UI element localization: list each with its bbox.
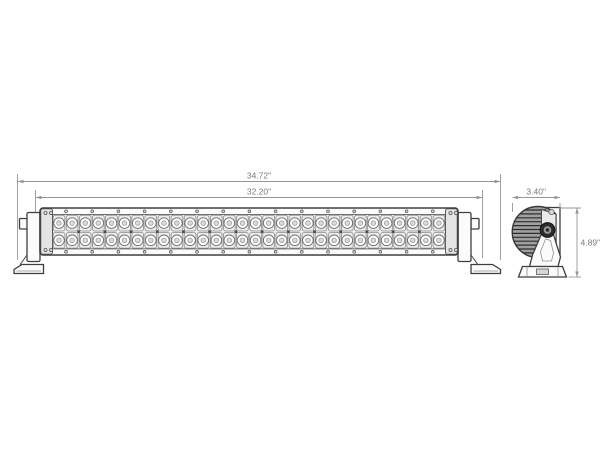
led-cell xyxy=(381,232,393,248)
led-cell xyxy=(407,232,419,248)
led-cell xyxy=(66,232,78,248)
housing-screw xyxy=(143,250,146,253)
dim-arrow-left xyxy=(513,196,519,199)
led-cell xyxy=(250,215,262,231)
housing-width-label: 32.20" xyxy=(247,187,271,197)
diagram-canvas: 34.72" 32.20" xyxy=(0,0,600,462)
housing-screw xyxy=(222,250,225,253)
housing-screw xyxy=(117,250,120,253)
led-cell xyxy=(184,215,196,231)
led-cell xyxy=(315,215,327,231)
led-cell xyxy=(119,232,131,248)
housing-screw xyxy=(91,210,94,213)
led-cell xyxy=(355,215,367,231)
housing-screw xyxy=(353,210,356,213)
divider-screw xyxy=(130,230,133,233)
led-cell xyxy=(93,232,105,248)
dim-arrow-top xyxy=(575,208,579,214)
led-cell xyxy=(433,215,445,231)
cap-screw xyxy=(454,211,457,214)
pivot-bolt xyxy=(540,223,555,238)
led-cell xyxy=(368,215,380,231)
led-cell xyxy=(237,215,249,231)
mount-bracket-left-arm xyxy=(27,213,40,262)
led-cell xyxy=(341,215,353,231)
housing-screw xyxy=(405,250,408,253)
dim-height: 4.89" xyxy=(559,208,600,277)
divider-screw xyxy=(418,230,421,233)
led-cell xyxy=(158,215,170,231)
led-cell xyxy=(407,215,419,231)
cap-screw xyxy=(454,248,457,251)
dim-arrow-left xyxy=(36,196,42,200)
housing-screw xyxy=(196,210,199,213)
led-cell xyxy=(224,215,236,231)
housing-screw xyxy=(379,210,382,213)
housing-screw xyxy=(248,210,251,213)
cap-screw xyxy=(49,248,52,251)
led-cell xyxy=(315,232,327,248)
led-cell xyxy=(171,215,183,231)
housing-screw xyxy=(248,250,251,253)
housing-screw xyxy=(300,250,303,253)
led-cell xyxy=(66,215,78,231)
cap-screw xyxy=(44,248,47,251)
led-cell xyxy=(328,215,340,231)
housing-screw xyxy=(274,250,277,253)
led-cell xyxy=(171,232,183,248)
divider-screw xyxy=(261,230,264,233)
housing-screw xyxy=(65,210,68,213)
overall-width-label: 34.72" xyxy=(247,171,271,181)
led-cell xyxy=(119,215,131,231)
led-cell xyxy=(341,232,353,248)
front-view: 34.72" 32.20" xyxy=(14,171,501,274)
housing-screw xyxy=(169,250,172,253)
mount-bracket-left-foot xyxy=(14,265,44,274)
clamp-screw xyxy=(549,209,554,214)
housing-screw xyxy=(431,250,434,253)
divider-screw xyxy=(365,230,368,233)
cap-screw xyxy=(449,211,452,214)
mount-bracket-left-tab xyxy=(20,219,28,230)
led-cell xyxy=(210,215,222,231)
led-cell xyxy=(302,215,314,231)
led-cell xyxy=(289,232,301,248)
dim-arrow-right xyxy=(477,196,483,200)
led-cell xyxy=(394,232,406,248)
dim-arrow-right xyxy=(555,196,561,199)
mount-bracket-left xyxy=(14,213,44,274)
led-cell xyxy=(420,232,432,248)
led-cell xyxy=(381,215,393,231)
mount-bracket-right-foot xyxy=(471,265,501,274)
housing-screw xyxy=(327,250,330,253)
led-cell xyxy=(276,232,288,248)
divider-screw xyxy=(313,230,316,233)
end-cap-left xyxy=(41,209,53,254)
pivot-bolt-center xyxy=(546,228,550,232)
divider-screw xyxy=(103,230,106,233)
divider-screw xyxy=(392,230,395,233)
led-cell xyxy=(145,215,157,231)
led-cell xyxy=(276,215,288,231)
height-label: 4.89" xyxy=(581,238,600,248)
led-cell xyxy=(106,215,118,231)
led-cell xyxy=(197,232,209,248)
bracket-bend-line xyxy=(20,255,27,265)
divider-screw xyxy=(339,230,342,233)
led-cell xyxy=(210,232,222,248)
mount-bracket-right-tab xyxy=(471,219,479,230)
led-cell xyxy=(93,215,105,231)
led-cell xyxy=(79,215,91,231)
housing-screw xyxy=(169,210,172,213)
housing-screw xyxy=(405,210,408,213)
base-slot xyxy=(537,269,549,275)
led-cell xyxy=(433,232,445,248)
led-cell xyxy=(106,232,118,248)
led-cell xyxy=(237,232,249,248)
divider-screw xyxy=(208,230,211,233)
led-cell xyxy=(263,232,275,248)
bracket-bend-line xyxy=(471,255,478,265)
divider-screw xyxy=(77,230,80,233)
led-cell xyxy=(224,232,236,248)
lightbar-diagram-svg: 34.72" 32.20" xyxy=(0,0,600,462)
led-cell xyxy=(184,232,196,248)
led-cell xyxy=(132,232,144,248)
housing-screw xyxy=(143,210,146,213)
led-cell xyxy=(263,215,275,231)
mount-bracket-right-arm xyxy=(458,213,471,262)
led-cell xyxy=(53,232,65,248)
led-cell xyxy=(132,215,144,231)
housing-screw xyxy=(379,250,382,253)
led-cell xyxy=(302,232,314,248)
housing-screw xyxy=(91,250,94,253)
led-cell xyxy=(158,232,170,248)
led-cell xyxy=(289,215,301,231)
led-cell xyxy=(420,215,432,231)
led-cell xyxy=(368,232,380,248)
cap-screw xyxy=(44,211,47,214)
housing-screw xyxy=(300,210,303,213)
housing-screw xyxy=(222,210,225,213)
led-cell xyxy=(79,232,91,248)
housing-screw xyxy=(65,250,68,253)
end-cap-right xyxy=(446,209,458,254)
cap-screw xyxy=(49,211,52,214)
side-view: 3.40" 4.89" xyxy=(509,187,600,278)
divider-screw xyxy=(156,230,159,233)
housing-screw xyxy=(196,250,199,253)
led-cell xyxy=(394,215,406,231)
led-cell xyxy=(145,232,157,248)
divider-screw xyxy=(182,230,185,233)
mount-bracket-right xyxy=(458,213,501,274)
housing-screw xyxy=(274,210,277,213)
dim-arrow-right xyxy=(495,180,501,184)
led-cell xyxy=(355,232,367,248)
led-cell xyxy=(197,215,209,231)
cap-screw xyxy=(449,248,452,251)
dim-arrow-left xyxy=(18,180,24,184)
dim-arrow-bottom xyxy=(575,272,579,278)
housing-screw xyxy=(431,210,434,213)
divider-screw xyxy=(234,230,237,233)
housing-screw xyxy=(327,210,330,213)
housing-screw xyxy=(353,250,356,253)
depth-label: 3.40" xyxy=(526,187,546,197)
led-cell xyxy=(250,232,262,248)
housing-screw xyxy=(117,210,120,213)
divider-screw xyxy=(287,230,290,233)
led-cell xyxy=(53,215,65,231)
led-cell xyxy=(328,232,340,248)
